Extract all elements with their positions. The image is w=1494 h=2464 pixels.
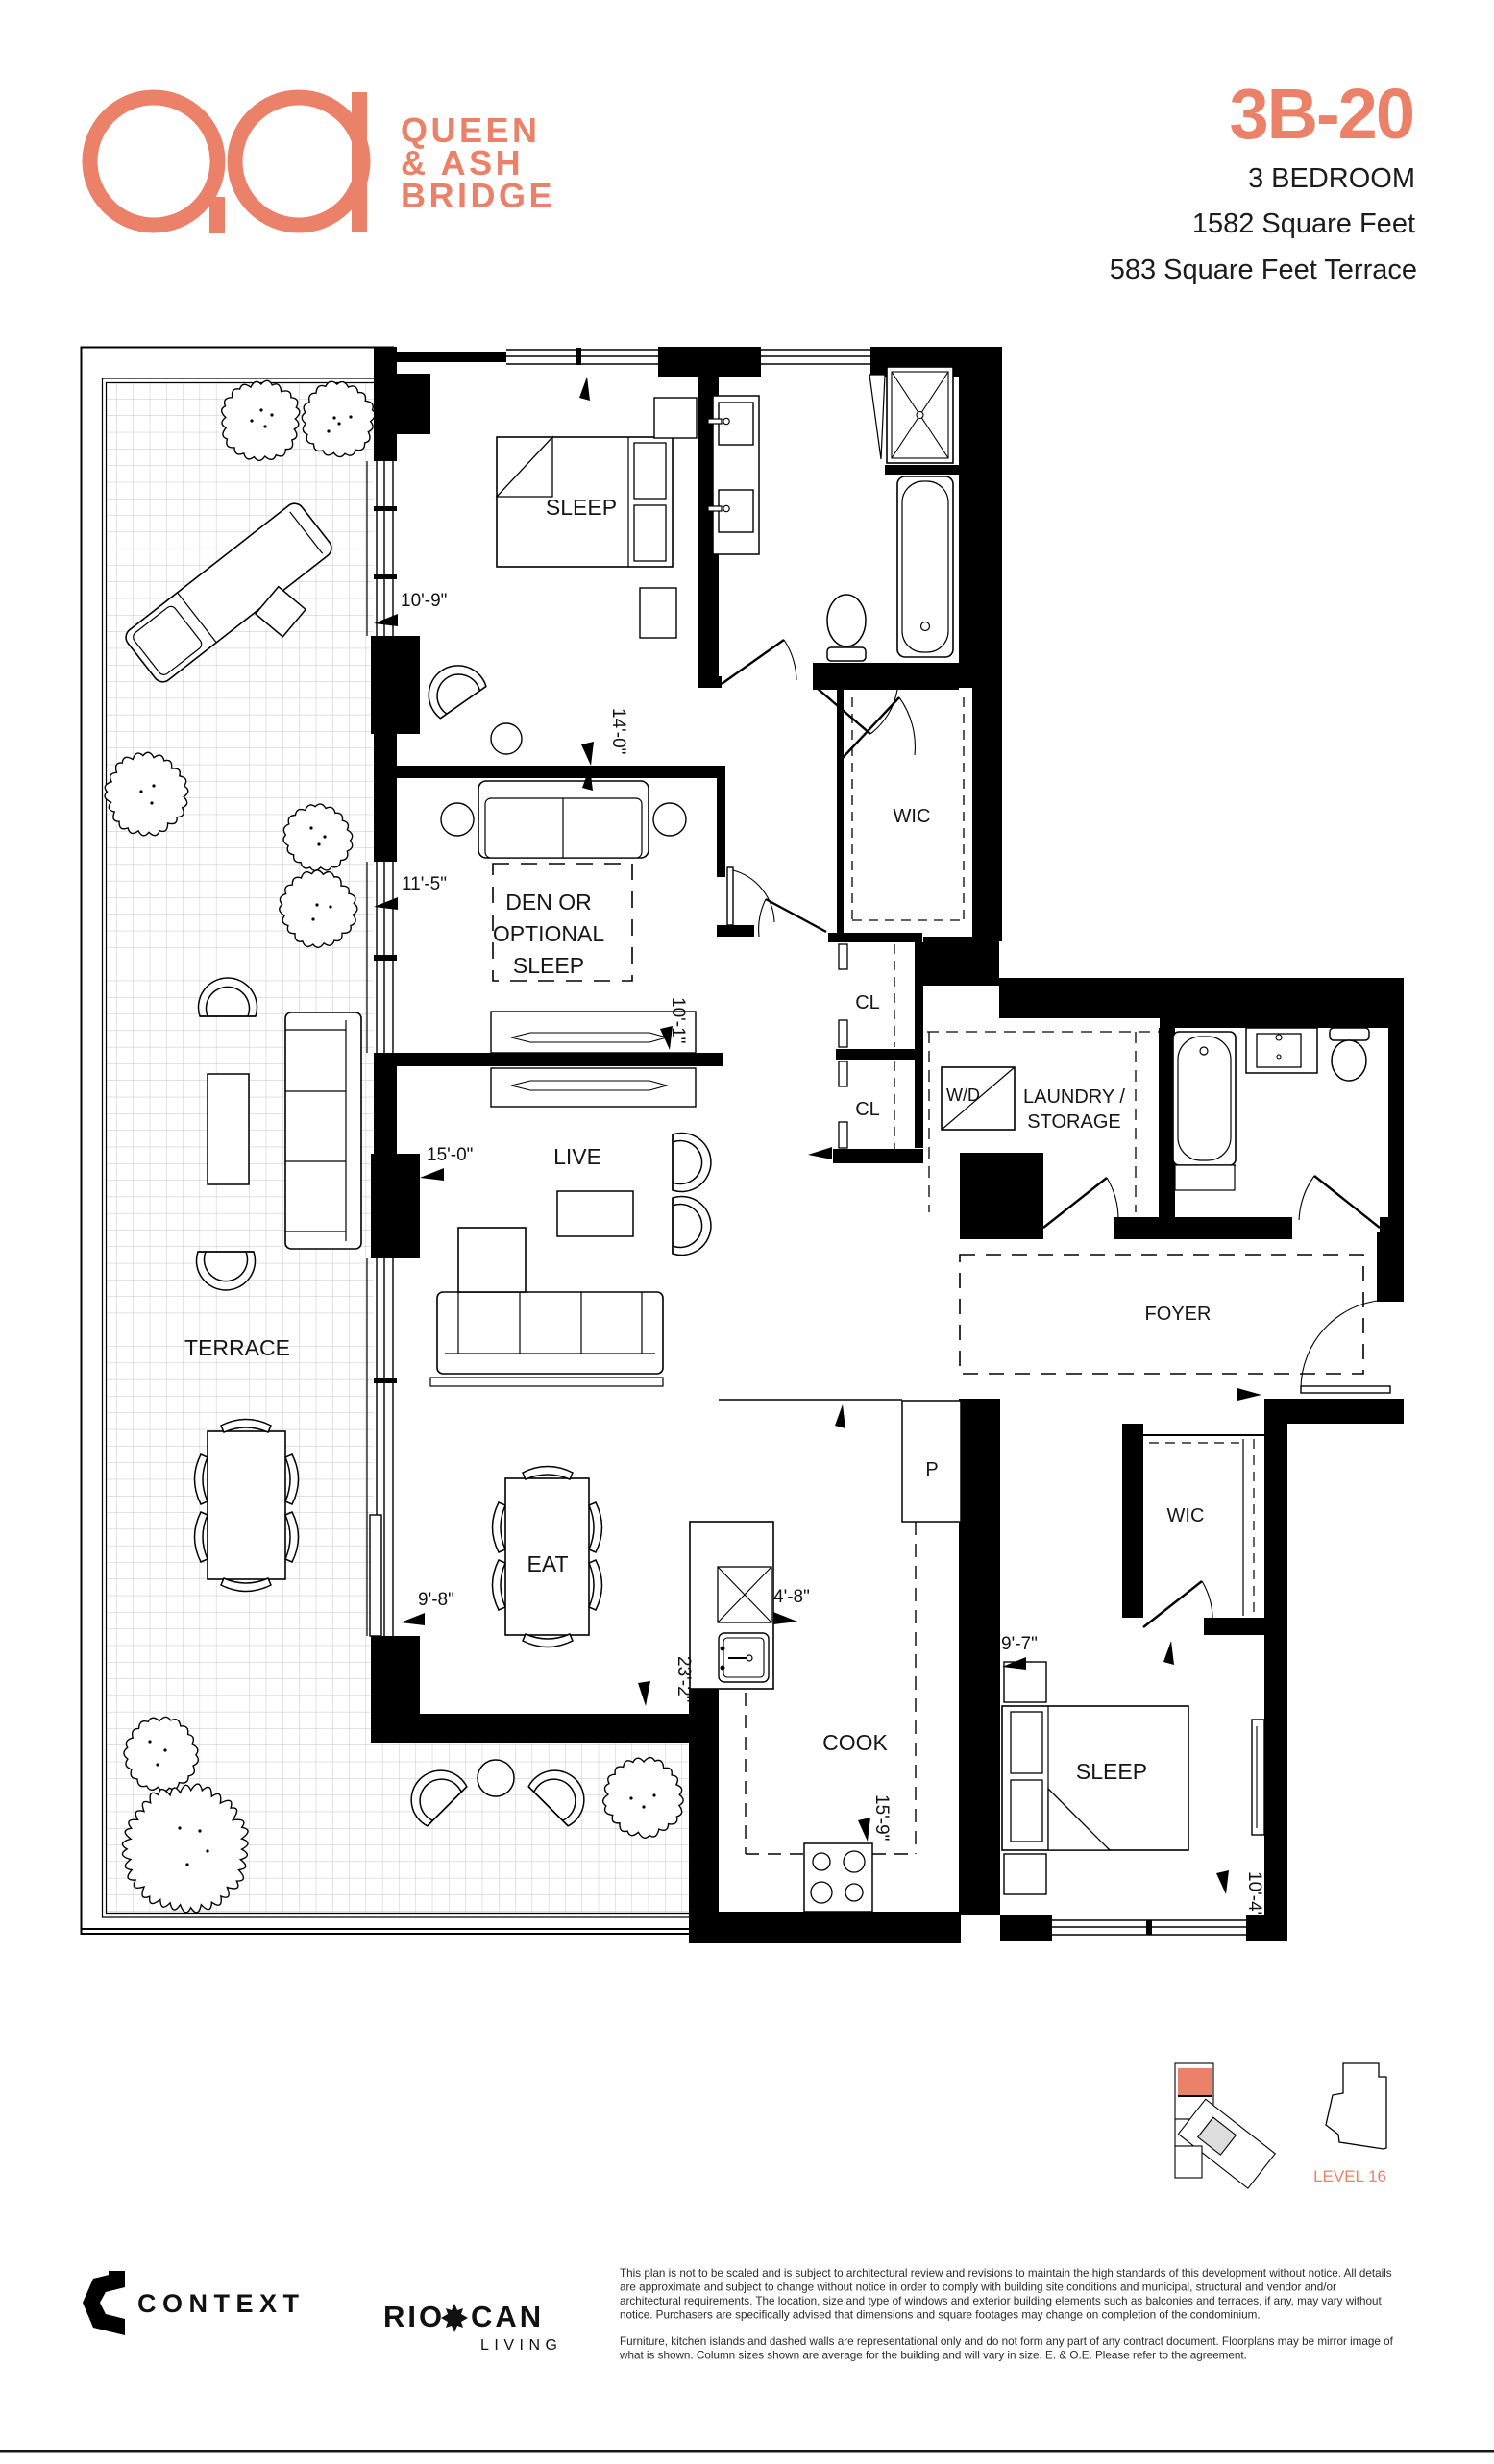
svg-text:9'-7": 9'-7" xyxy=(1001,1634,1038,1654)
svg-text:RIO: RIO xyxy=(383,2300,445,2333)
svg-text:9'-8": 9'-8" xyxy=(418,1590,454,1610)
svg-text:3 BEDROOM: 3 BEDROOM xyxy=(1248,163,1415,194)
svg-text:15'-9": 15'-9" xyxy=(871,1794,892,1841)
svg-text:notice. Purchasers are specifi: notice. Purchasers are specifically advi… xyxy=(620,2309,1261,2322)
svg-text:CAN: CAN xyxy=(471,2300,544,2333)
svg-text:LEVEL 16: LEVEL 16 xyxy=(1313,2167,1386,2185)
svg-text:SLEEP: SLEEP xyxy=(546,495,617,520)
svg-text:LAUNDRY /: LAUNDRY / xyxy=(1023,1086,1125,1108)
svg-text:P: P xyxy=(925,1459,938,1480)
svg-text:DEN OR: DEN OR xyxy=(505,890,591,915)
svg-text:WIC: WIC xyxy=(894,806,931,827)
svg-text:TERRACE: TERRACE xyxy=(184,1335,290,1360)
svg-text:CL: CL xyxy=(855,992,880,1013)
svg-text:Furniture, kitchen islands and: Furniture, kitchen islands and dashed wa… xyxy=(620,2335,1394,2348)
svg-text:4'-8": 4'-8" xyxy=(773,1587,810,1607)
svg-text:CL: CL xyxy=(855,1099,880,1120)
svg-text:LIVING: LIVING xyxy=(480,2337,562,2354)
svg-text:architectural requirements. Th: architectural requirements. The location… xyxy=(620,2295,1383,2307)
svg-text:SLEEP: SLEEP xyxy=(513,953,584,978)
svg-text:10'-9": 10'-9" xyxy=(401,591,447,611)
svg-text:WIC: WIC xyxy=(1167,1505,1205,1526)
svg-text:3B-20: 3B-20 xyxy=(1229,74,1413,154)
svg-text:583 Square Feet Terrace: 583 Square Feet Terrace xyxy=(1110,255,1417,285)
svg-text:15'-0": 15'-0" xyxy=(427,1145,473,1165)
svg-text:14'-0": 14'-0" xyxy=(608,708,628,754)
svg-text:FOYER: FOYER xyxy=(1145,1304,1212,1325)
svg-text:OPTIONAL: OPTIONAL xyxy=(493,921,605,946)
svg-text:STORAGE: STORAGE xyxy=(1027,1111,1120,1133)
svg-text:LIVE: LIVE xyxy=(553,1144,601,1169)
svg-text:what is shown. Column sizes sh: what is shown. Column sizes shown are av… xyxy=(619,2350,1247,2362)
svg-text:EAT: EAT xyxy=(527,1551,568,1576)
svg-text:CONTEXT: CONTEXT xyxy=(137,2289,306,2318)
svg-text:W/D: W/D xyxy=(946,1086,980,1105)
svg-text:SLEEP: SLEEP xyxy=(1076,1759,1147,1784)
svg-text:11'-5": 11'-5" xyxy=(402,874,447,894)
svg-text:COOK: COOK xyxy=(822,1730,888,1755)
svg-text:23'-2": 23'-2" xyxy=(674,1656,694,1702)
svg-text:BRIDGE: BRIDGE xyxy=(401,176,555,215)
svg-text:This plan is not to be scaled: This plan is not to be scaled and is sub… xyxy=(620,2267,1392,2280)
svg-text:are approximate and subject to: are approximate and subject to change wi… xyxy=(620,2281,1336,2294)
svg-text:10'-4": 10'-4" xyxy=(1244,1871,1264,1917)
svg-text:1582 Square Feet: 1582 Square Feet xyxy=(1192,208,1415,239)
